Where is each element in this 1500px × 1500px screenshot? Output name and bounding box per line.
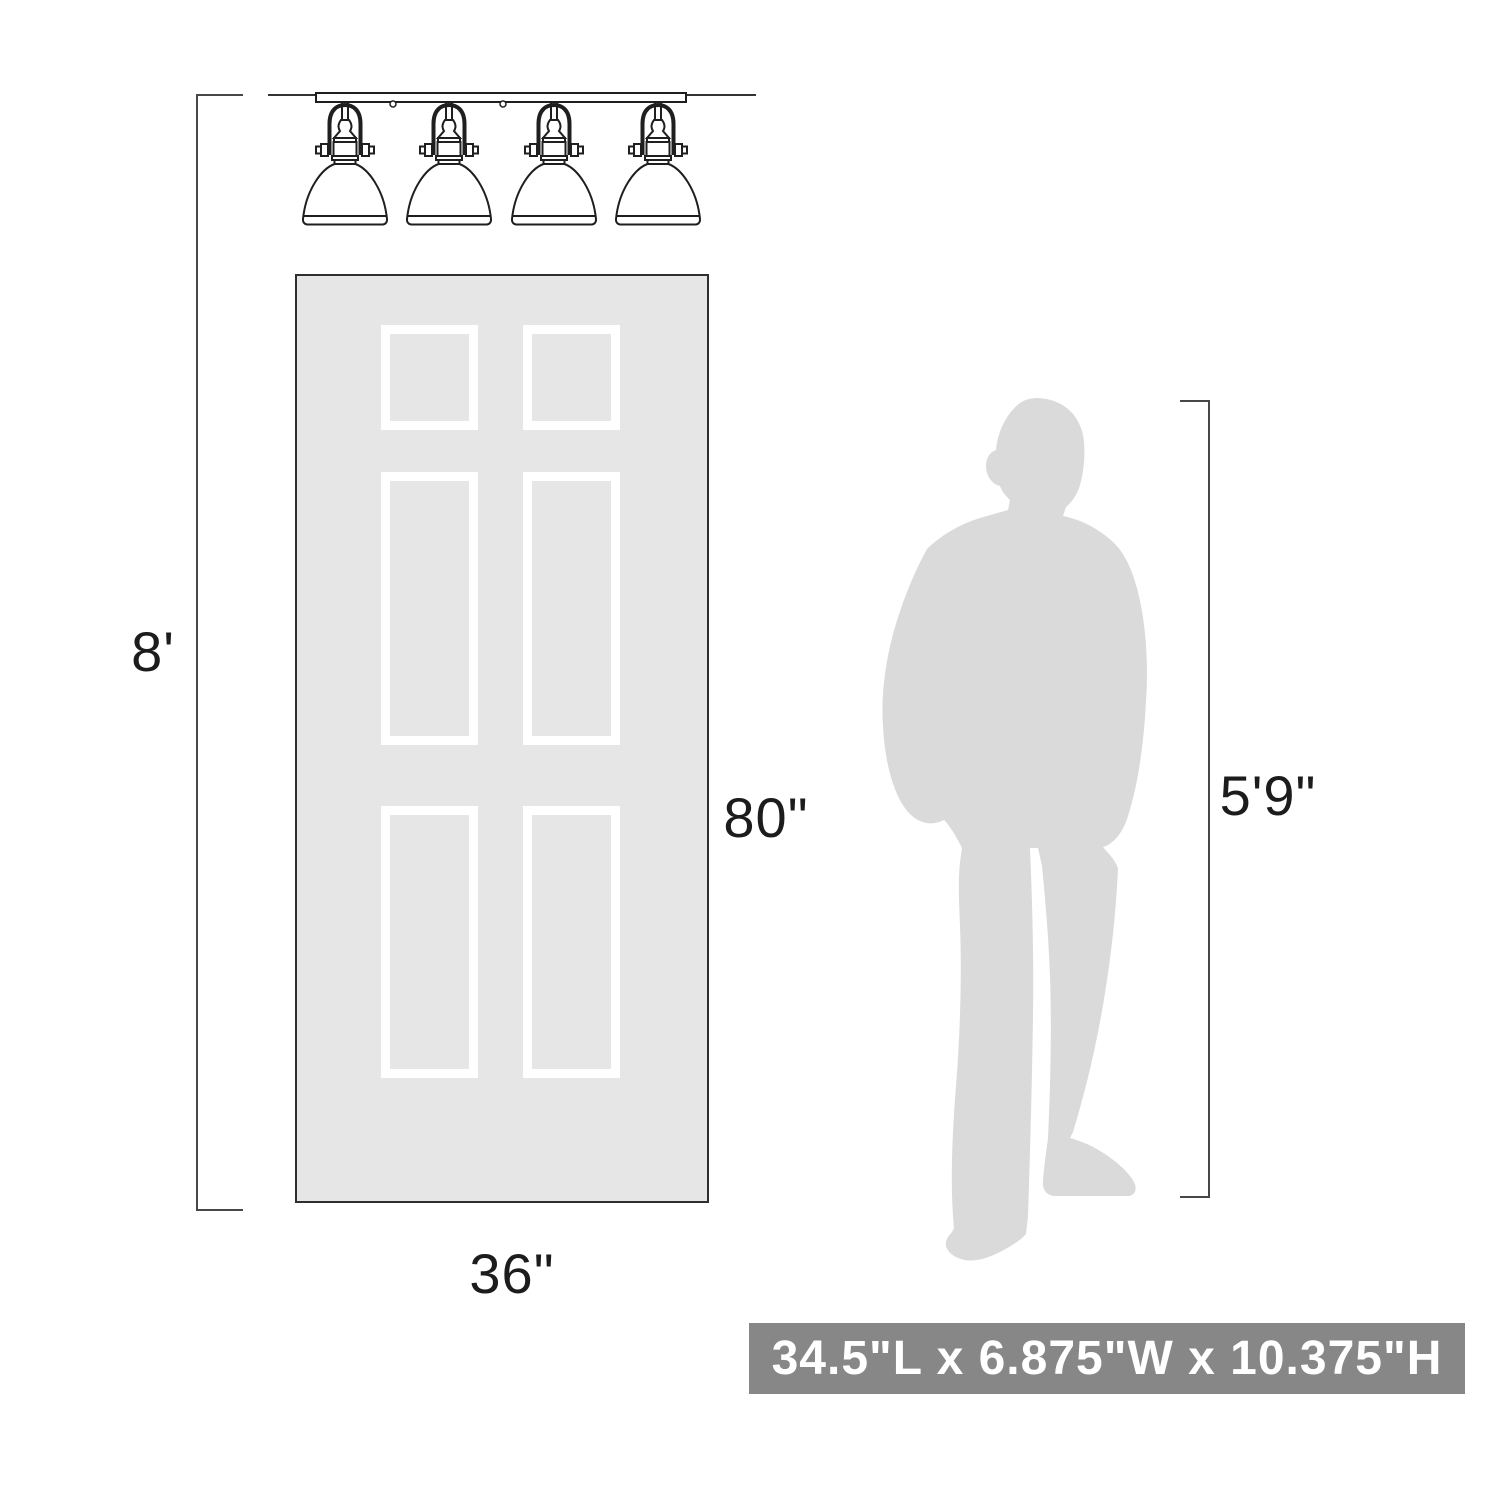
light-lamp-1 [303,102,387,225]
diagram-line-art [0,0,1500,1500]
product-size-banner: 34.5"L x 6.875"W x 10.375"H [749,1323,1465,1394]
light-lamp-3 [512,102,596,225]
product-size-text: 34.5"L x 6.875"W x 10.375"H [772,1331,1443,1386]
person-height-label: 5'9" [1203,768,1333,824]
mounting-bar-screw [500,101,506,107]
door-panel [523,472,620,745]
door-width-label: 36" [452,1246,572,1302]
door-panel [523,806,620,1078]
door-panel [381,325,478,430]
ceiling-height-dimension-line [197,95,243,1210]
door-panel [381,806,478,1078]
person-silhouette-shape [882,398,1146,1261]
door-panel [381,472,478,745]
door-height-label: 80" [711,790,821,846]
light-lamp-4 [616,102,700,225]
fixture-mounting-bar [316,93,686,102]
door-illustration [295,274,709,1203]
mounting-bar-screw [390,101,396,107]
ceiling-height-label: 8' [103,624,203,680]
vanity-light-fixture [303,93,700,225]
light-lamp-2 [407,102,491,225]
dimension-diagram: 8' 80" 36" 5'9" 34.5"L x 6.875"W x 10.37… [0,0,1500,1500]
person-silhouette [882,398,1146,1261]
door-panel [523,325,620,430]
